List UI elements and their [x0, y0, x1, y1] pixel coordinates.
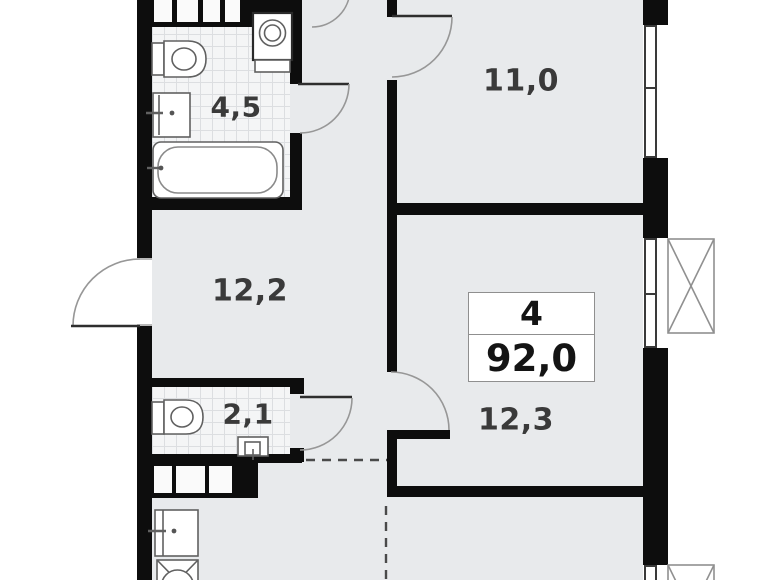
label-bathroom-area: 4,5: [210, 91, 261, 124]
label-hallway-area: 12,2: [212, 274, 288, 309]
room-11-0-door: [392, 16, 452, 77]
washing-machine: [253, 13, 292, 72]
entrance-door: [71, 259, 152, 326]
bathroom-sink: [146, 93, 190, 137]
kitchen-sink-cabinet: [148, 510, 198, 556]
unit-total-area: 92,0: [469, 334, 594, 381]
wc-basin: [238, 437, 268, 460]
bathroom-toilet: [152, 41, 206, 77]
label-room-12-3-area: 12,3: [478, 403, 554, 438]
floor-plan: 4,5 11,0 12,2 2,1 12,3 4 92,0: [0, 0, 780, 580]
top-cropped-door: [312, 0, 350, 27]
balcony-basket-lower: [668, 565, 714, 580]
bathtub: [147, 142, 283, 198]
unit-rooms-count: 4: [469, 293, 594, 334]
kitchen-stove: [157, 560, 198, 580]
label-wc-area: 2,1: [222, 398, 273, 431]
balcony-basket-upper: [668, 239, 714, 333]
plan-symbols-layer: [0, 0, 780, 580]
wc-toilet: [152, 400, 203, 434]
unit-info-box: 4 92,0: [468, 292, 595, 382]
bathroom-door: [298, 84, 349, 133]
room-12-3-door: [391, 372, 449, 430]
label-room-11-0-area: 11,0: [483, 64, 559, 99]
kitchen-zone-dashed-line: [306, 460, 387, 580]
wc-door: [300, 397, 352, 450]
